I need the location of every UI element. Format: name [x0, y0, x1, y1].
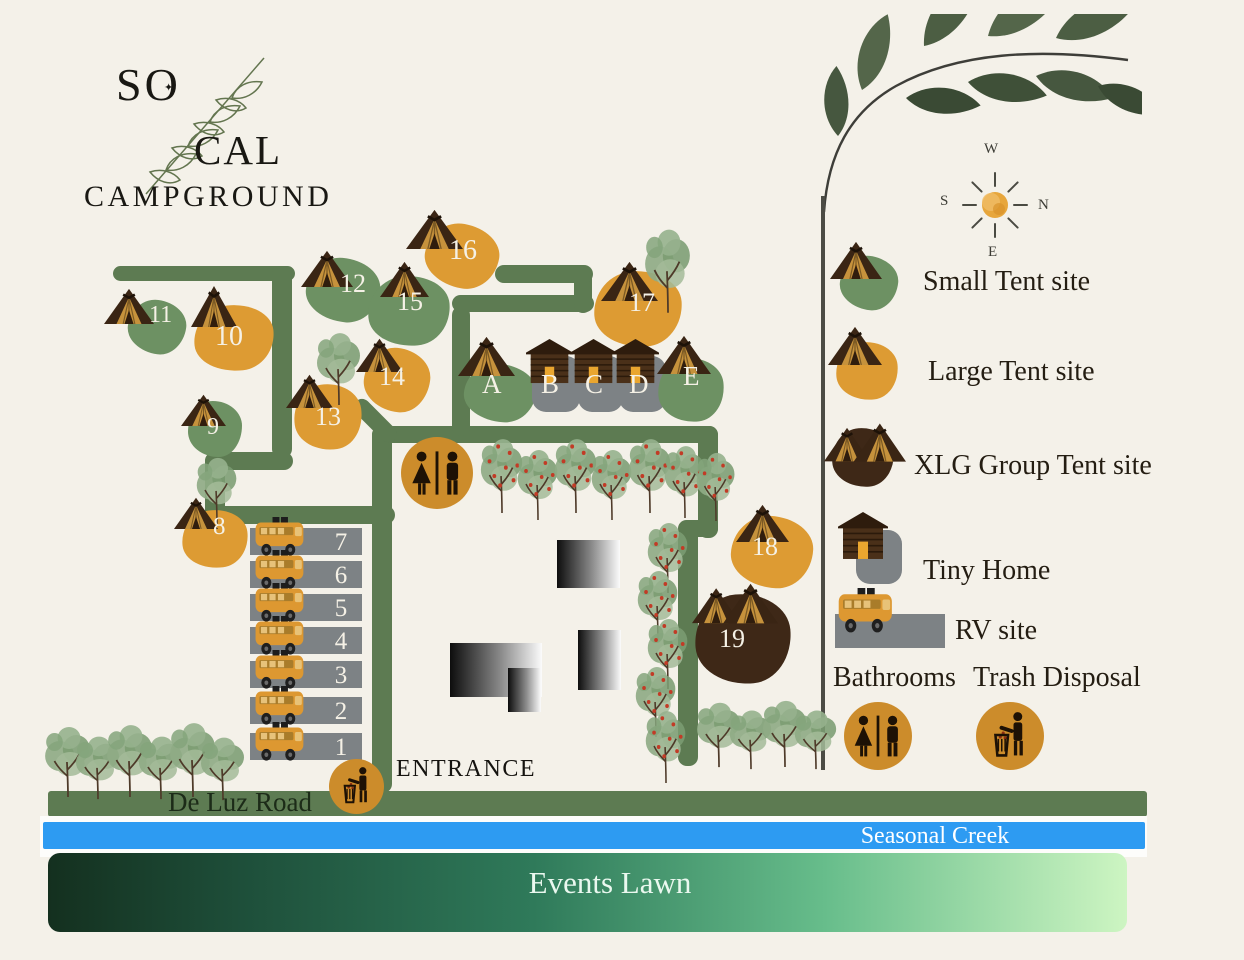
berry-tree-icon [694, 450, 738, 522]
legend-large-icon [828, 326, 882, 365]
rv-icon-3 [254, 650, 308, 690]
site-9-label: 9 [207, 415, 219, 439]
logo-star-icon: ✦ [164, 83, 173, 94]
compass-north-label: N [1038, 198, 1049, 213]
legend-xlg-icon [824, 420, 906, 466]
building [578, 630, 621, 690]
building [508, 668, 541, 712]
entrance-label: ENTRANCE [396, 757, 536, 781]
legend-rv-icon [837, 588, 897, 634]
legend-tiny-icon [838, 512, 888, 560]
bathrooms-map-icon [401, 437, 473, 509]
campground-map-poster: SO ✦ CAL CAMPGROUND [0, 0, 1244, 960]
site-D-label: D [629, 371, 649, 398]
legend-label-rv: RV site [955, 617, 1037, 645]
legend-label-bath: Bathrooms [833, 664, 956, 692]
site-14-label: 14 [379, 364, 405, 390]
rv-label-5: 5 [326, 596, 356, 621]
berry-tree-icon [643, 708, 689, 784]
logo-line-campground: CAMPGROUND [84, 182, 332, 212]
legend-small-icon [830, 241, 882, 279]
trash-map-icon [329, 759, 384, 814]
site-10-label: 10 [215, 323, 243, 351]
legend-label-small: Small Tent site [923, 268, 1090, 296]
site-8-label: 8 [213, 514, 226, 539]
rv-label-4: 4 [326, 629, 356, 654]
site-16-label: 16 [449, 237, 477, 265]
rv-label-6: 6 [326, 563, 356, 588]
compass: W S N E [938, 142, 1050, 260]
site-19-label: 19 [719, 626, 745, 652]
site-C-label: C [585, 371, 603, 398]
road-segment [113, 266, 295, 281]
events-lawn-label: Events Lawn [94, 867, 1126, 898]
site-18-label: 18 [752, 534, 778, 560]
road-segment [272, 266, 292, 458]
building [557, 540, 620, 588]
compass-sun-icon [955, 165, 1035, 245]
compass-east-label: E [988, 245, 997, 260]
site-13-label: 13 [315, 404, 341, 430]
site-E-label: E [683, 363, 700, 390]
legend-label-xlg: XLG Group Tent site [914, 452, 1152, 480]
logo-line-cal: CAL [194, 130, 282, 171]
road-segment [495, 265, 593, 283]
site-8-tent-icon [174, 497, 218, 529]
site-9-tent-icon [181, 394, 226, 426]
legend-label-trash: Trash Disposal [973, 664, 1141, 692]
rv-label-2: 2 [326, 699, 356, 724]
rv-icon-1 [254, 722, 308, 762]
site-B-label: B [541, 371, 559, 398]
site-15-label: 15 [397, 289, 423, 315]
site-11-tent-icon [104, 288, 154, 324]
legend-label-tiny: Tiny Home [923, 557, 1050, 585]
compass-south-label: S [940, 194, 948, 209]
road-segment [452, 295, 594, 312]
site-19-tent-icon [692, 580, 778, 628]
legend-label-large: Large Tent site [928, 358, 1095, 386]
legend-bath-icon [844, 702, 912, 770]
site-11-label: 11 [149, 303, 172, 327]
site-A-label: A [482, 371, 502, 398]
rv-label-7: 7 [326, 530, 356, 555]
de-luz-road-label: De Luz Road [168, 789, 312, 816]
site-12-label: 12 [340, 271, 366, 297]
rv-label-3: 3 [326, 663, 356, 688]
seasonal-creek-label: Seasonal Creek [795, 824, 1075, 848]
rv-icon-2 [254, 686, 308, 726]
rv-label-1: 1 [326, 735, 356, 760]
legend-trash-icon [976, 702, 1044, 770]
compass-west-label: W [984, 142, 998, 157]
tree-icon [792, 708, 840, 770]
road-segment [372, 426, 392, 793]
legend-divider-line [821, 196, 825, 770]
site-17-label: 17 [629, 290, 655, 316]
